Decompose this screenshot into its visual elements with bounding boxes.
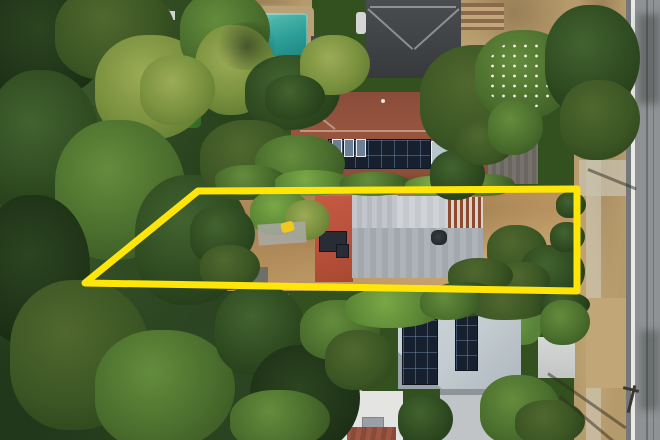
roof-vent (381, 99, 385, 103)
tree-shadow (212, 22, 282, 70)
powerline-wire (646, 0, 648, 440)
roof-ridge (370, 6, 456, 8)
skylight (344, 139, 354, 157)
aerial-photo (0, 0, 660, 440)
retaining-garden-rows (456, 3, 504, 30)
subject-house-metal-roof (397, 196, 448, 228)
powerline-wire (653, 0, 654, 440)
tree (95, 330, 235, 440)
subject-house-metal-roof (352, 195, 398, 228)
driveway-crossover (579, 160, 627, 196)
dirt-driveway (586, 298, 628, 388)
white-car (356, 12, 366, 34)
road-tree-shadow (640, 330, 660, 410)
skylight (356, 139, 366, 157)
tree (325, 330, 395, 390)
satellite-dish (431, 230, 447, 245)
road-tree-shadow (638, 14, 660, 104)
pergola-slats (448, 197, 483, 228)
tree (230, 390, 330, 440)
subject-house-solar-panels (336, 244, 349, 258)
rear-solar-array (402, 319, 438, 385)
bottom-red-tile-roof (347, 427, 396, 440)
tree (398, 395, 453, 440)
